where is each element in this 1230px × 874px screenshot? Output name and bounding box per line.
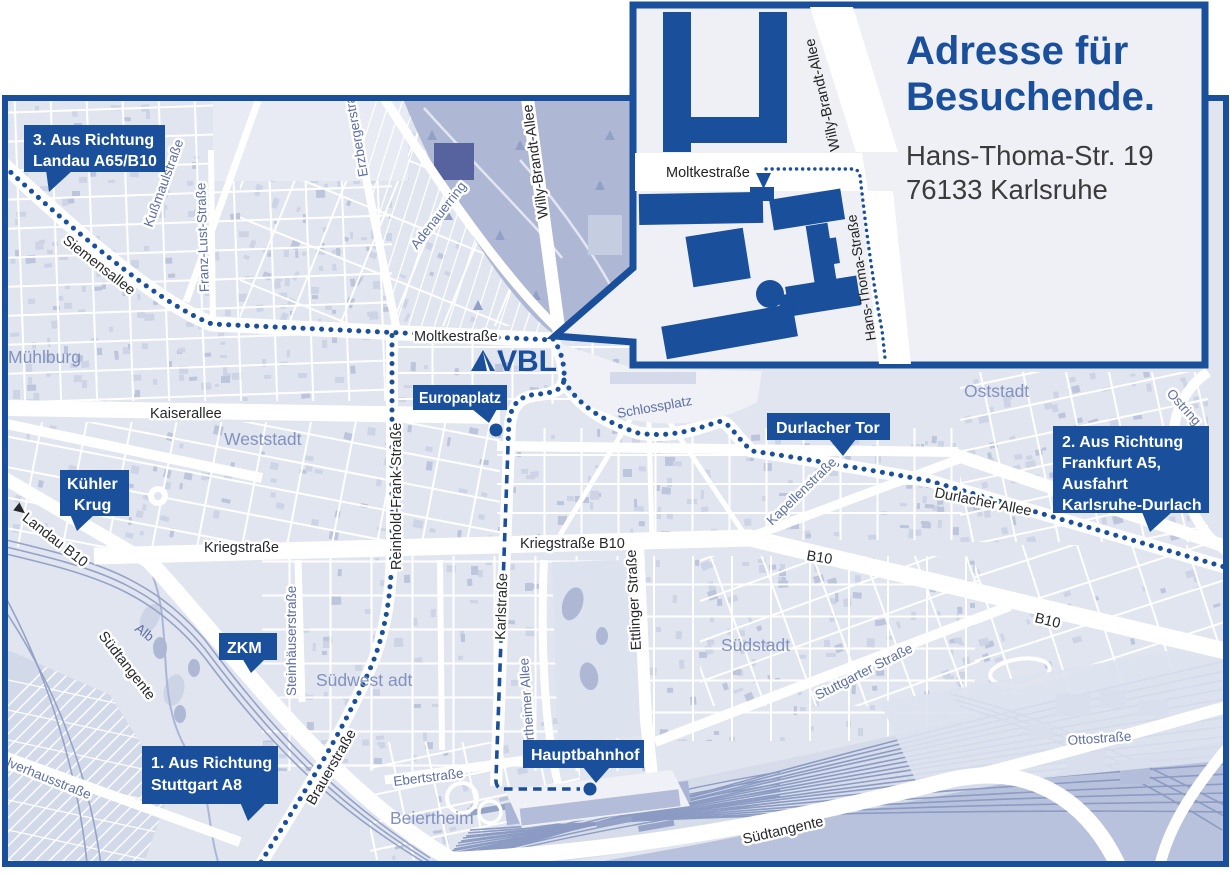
svg-text:Hans-Thoma-Str. 19: Hans-Thoma-Str. 19 <box>906 140 1154 171</box>
svg-text:Ausfahrt: Ausfahrt <box>1062 476 1128 493</box>
svg-text:Besuchende.: Besuchende. <box>906 75 1155 119</box>
svg-text:ZKM: ZKM <box>227 640 262 657</box>
svg-text:Mühlburg: Mühlburg <box>8 347 81 367</box>
svg-text:Oststadt: Oststadt <box>964 381 1029 401</box>
svg-text:Frankfurt A5,: Frankfurt A5, <box>1062 455 1161 472</box>
svg-text:Südwest adt: Südwest adt <box>316 670 412 690</box>
svg-text:Moltkestraße: Moltkestraße <box>414 329 498 345</box>
svg-text:Steinhäuserstraße: Steinhäuserstraße <box>284 586 299 696</box>
svg-text:Karlsruhe-Durlach: Karlsruhe-Durlach <box>1062 497 1202 514</box>
svg-text:VBL: VBL <box>497 345 557 378</box>
svg-text:Durlacher Tor: Durlacher Tor <box>776 420 880 437</box>
svg-text:1. Aus Richtung: 1. Aus Richtung <box>151 755 272 772</box>
svg-text:Beiertheim: Beiertheim <box>390 808 474 828</box>
svg-text:Südstadt: Südstadt <box>721 635 790 655</box>
svg-text:Landau A65/B10: Landau A65/B10 <box>33 153 157 170</box>
svg-text:Europaplatz: Europaplatz <box>419 390 501 407</box>
svg-text:Moltkestraße: Moltkestraße <box>666 165 750 181</box>
svg-text:Karlstraße: Karlstraße <box>493 573 511 640</box>
svg-text:Kühler: Kühler <box>67 476 118 493</box>
svg-text:Kriegstraße: Kriegstraße <box>204 540 279 556</box>
svg-text:Krug: Krug <box>74 497 111 514</box>
svg-text:Stuttgart A8: Stuttgart A8 <box>151 777 242 794</box>
svg-text:3. Aus Richtung: 3. Aus Richtung <box>33 132 154 149</box>
svg-text:Adresse für: Adresse für <box>906 29 1128 73</box>
svg-text:76133 Karlsruhe: 76133 Karlsruhe <box>906 174 1108 205</box>
svg-text:Hauptbahnhof: Hauptbahnhof <box>531 747 640 764</box>
svg-text:2. Aus Richtung: 2. Aus Richtung <box>1062 434 1183 451</box>
svg-text:Weststadt: Weststadt <box>224 429 302 449</box>
svg-text:Kriegstraße B10: Kriegstraße B10 <box>520 536 625 552</box>
svg-text:Kaiserallee: Kaiserallee <box>150 406 222 422</box>
svg-text:Reinhold-Frank-Straße: Reinhold-Frank-Straße <box>389 423 405 570</box>
